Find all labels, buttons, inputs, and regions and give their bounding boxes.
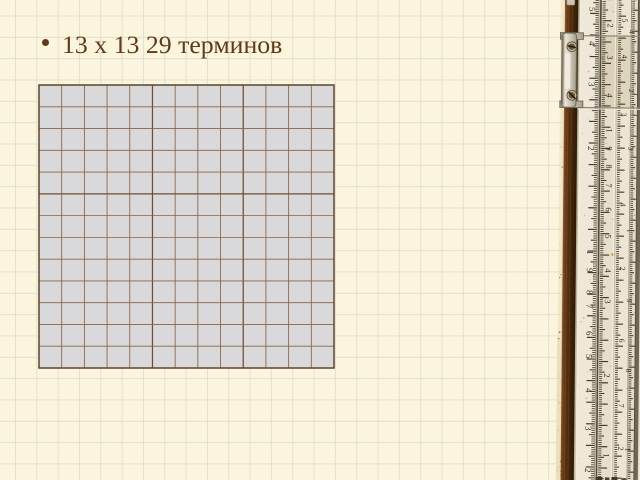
svg-text:4: 4: [584, 388, 594, 393]
svg-text:9: 9: [625, 299, 634, 303]
svg-text:4: 4: [619, 203, 628, 207]
svg-text:2: 2: [586, 146, 596, 151]
svg-text:6: 6: [604, 207, 613, 211]
svg-text:7: 7: [617, 404, 626, 408]
svg-text:3: 3: [626, 147, 635, 151]
svg-text:1: 1: [605, 128, 614, 132]
svg-text:2: 2: [606, 23, 615, 27]
svg-text:3: 3: [603, 299, 612, 303]
svg-text:1: 1: [626, 229, 635, 233]
svg-text:2: 2: [583, 468, 593, 473]
svg-text:3: 3: [587, 82, 597, 87]
svg-text:9: 9: [604, 146, 613, 150]
svg-text:7: 7: [585, 304, 595, 309]
svg-text:2: 2: [627, 89, 636, 93]
svg-text:2: 2: [602, 373, 611, 377]
svg-text:4: 4: [620, 55, 629, 59]
svg-text:5: 5: [584, 354, 594, 359]
svg-text:1: 1: [585, 250, 595, 255]
svg-text:5: 5: [620, 19, 629, 23]
svg-text:5: 5: [587, 7, 597, 12]
svg-text:4: 4: [587, 41, 597, 46]
svg-text:2: 2: [618, 267, 627, 271]
svg-text:8: 8: [624, 369, 633, 373]
svg-text:6: 6: [584, 331, 594, 336]
svg-text:3: 3: [605, 55, 614, 59]
svg-text:9: 9: [585, 268, 595, 273]
svg-text:8: 8: [585, 290, 595, 295]
svg-text:3: 3: [583, 426, 593, 431]
svg-text:7: 7: [604, 183, 613, 187]
svg-text:5: 5: [604, 234, 613, 238]
svg-text:1: 1: [601, 453, 610, 457]
svg-text:8: 8: [604, 164, 613, 168]
svg-text:4: 4: [627, 30, 636, 34]
svg-text:1: 1: [623, 448, 632, 452]
svg-text:3: 3: [619, 113, 628, 117]
svg-text:6: 6: [617, 339, 626, 343]
